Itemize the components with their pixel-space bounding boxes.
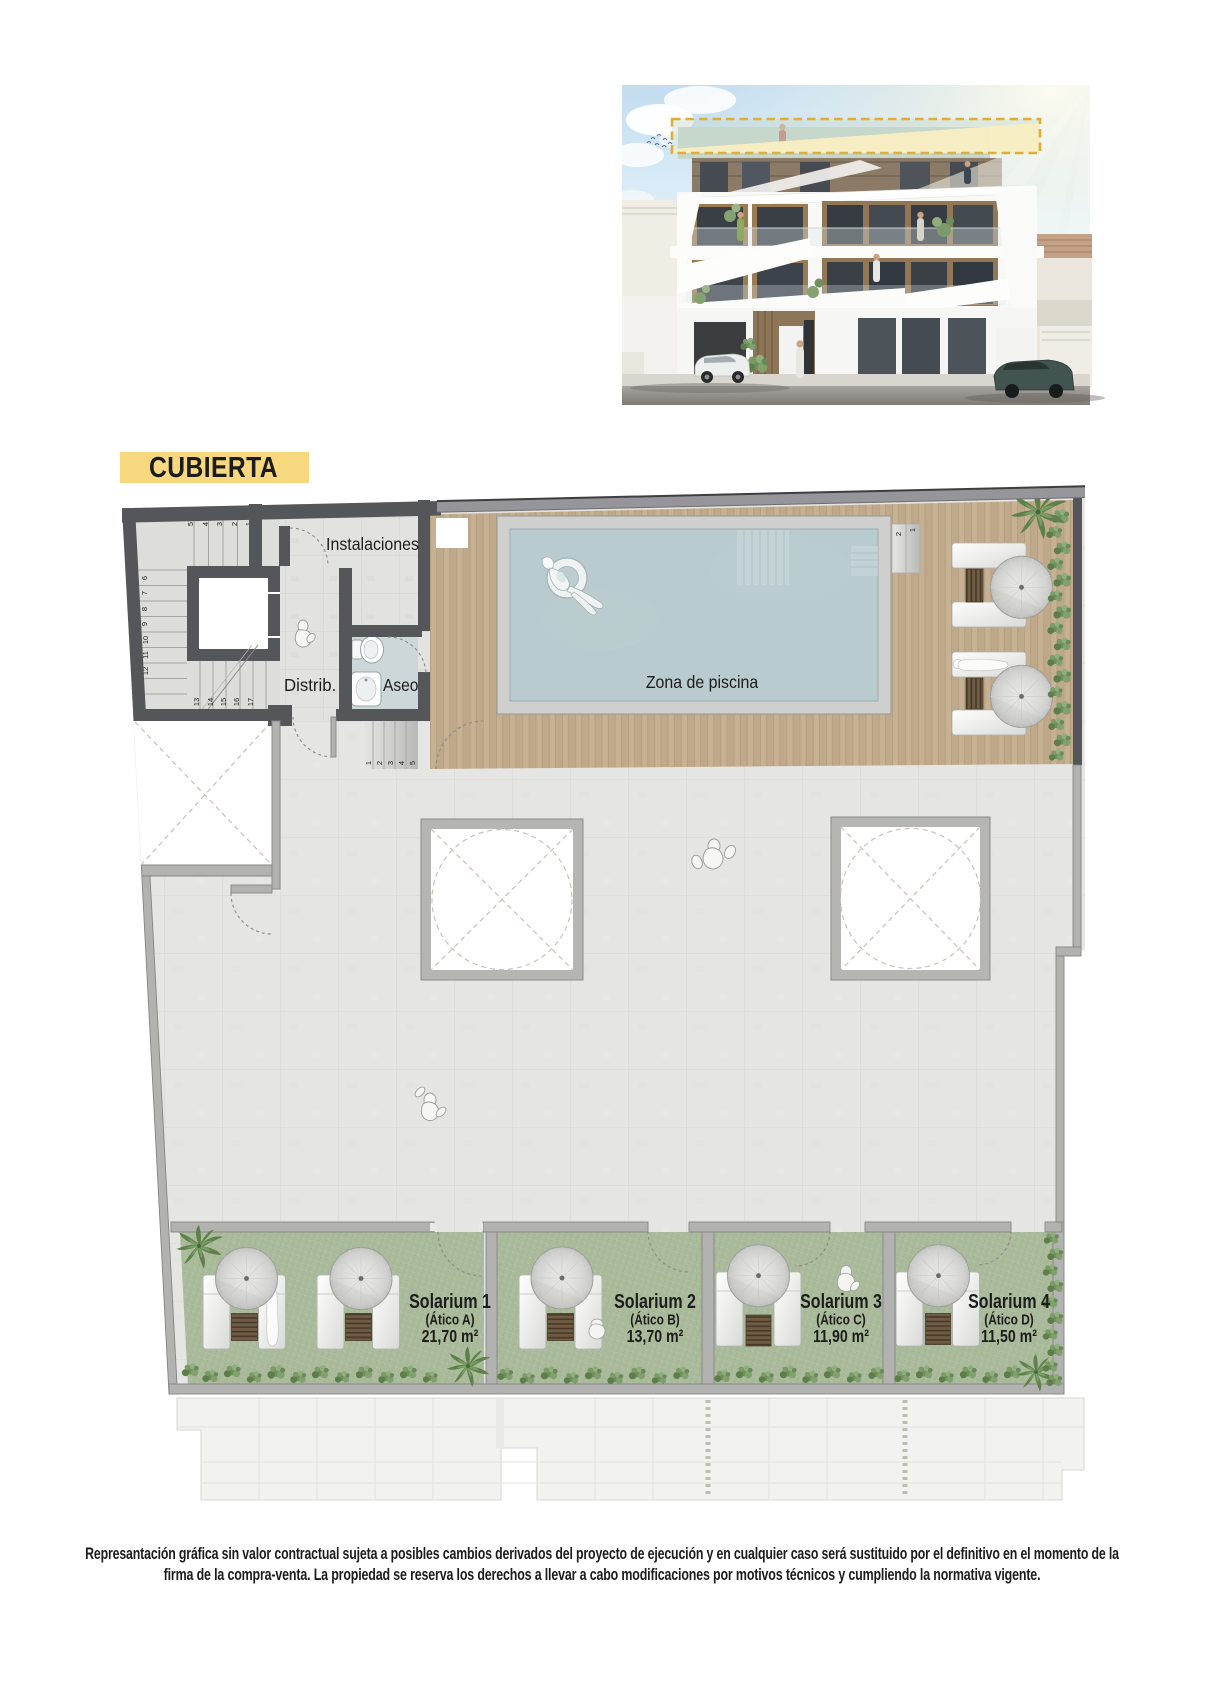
svg-text:5: 5 bbox=[186, 522, 195, 526]
svg-text:Aseo: Aseo bbox=[383, 675, 418, 695]
svg-text:1: 1 bbox=[908, 528, 917, 532]
svg-text:2: 2 bbox=[894, 532, 903, 536]
svg-text:Instalaciones: Instalaciones bbox=[326, 534, 419, 554]
svg-text:Solarium 1: Solarium 1 bbox=[409, 1289, 491, 1312]
svg-text:Zona de piscina: Zona de piscina bbox=[646, 672, 759, 692]
svg-text:21,70 m²: 21,70 m² bbox=[422, 1328, 479, 1347]
svg-text:14: 14 bbox=[206, 698, 215, 706]
svg-text:2: 2 bbox=[230, 522, 239, 526]
svg-text:(Ático A): (Ático A) bbox=[425, 1311, 474, 1327]
svg-text:(Ático D): (Ático D) bbox=[984, 1311, 1034, 1327]
svg-text:1: 1 bbox=[364, 761, 373, 765]
svg-text:5: 5 bbox=[408, 761, 417, 765]
svg-text:CUBIERTA: CUBIERTA bbox=[149, 451, 278, 483]
svg-text:16: 16 bbox=[232, 698, 241, 706]
svg-text:10: 10 bbox=[141, 636, 150, 644]
svg-text:2: 2 bbox=[375, 761, 384, 765]
svg-text:7: 7 bbox=[140, 591, 149, 595]
svg-text:4: 4 bbox=[201, 522, 210, 526]
svg-text:Represantación gráfica sin val: Represantación gráfica sin valor contrac… bbox=[85, 1545, 1120, 1563]
svg-text:6: 6 bbox=[140, 576, 149, 580]
svg-text:17: 17 bbox=[246, 698, 255, 706]
svg-text:13,70 m²: 13,70 m² bbox=[627, 1328, 684, 1347]
svg-text:Solarium 2: Solarium 2 bbox=[614, 1289, 696, 1312]
svg-text:Solarium 3: Solarium 3 bbox=[800, 1289, 882, 1312]
svg-text:11,90 m²: 11,90 m² bbox=[813, 1328, 869, 1347]
svg-text:(Ático C): (Ático C) bbox=[816, 1311, 866, 1327]
svg-text:Distrib.: Distrib. bbox=[284, 675, 336, 695]
svg-text:4: 4 bbox=[397, 761, 406, 765]
svg-text:9: 9 bbox=[140, 622, 149, 626]
svg-text:15: 15 bbox=[219, 698, 228, 706]
svg-text:firma de la compra-venta. La p: firma de la compra-venta. La propiedad s… bbox=[164, 1566, 1041, 1584]
svg-text:11,50 m²: 11,50 m² bbox=[981, 1328, 1037, 1347]
svg-text:Solarium 4: Solarium 4 bbox=[968, 1289, 1050, 1312]
svg-text:(Ático B): (Ático B) bbox=[630, 1311, 680, 1327]
svg-text:3: 3 bbox=[386, 761, 395, 765]
svg-text:3: 3 bbox=[215, 522, 224, 526]
svg-text:8: 8 bbox=[140, 607, 149, 611]
svg-text:13: 13 bbox=[192, 698, 201, 706]
